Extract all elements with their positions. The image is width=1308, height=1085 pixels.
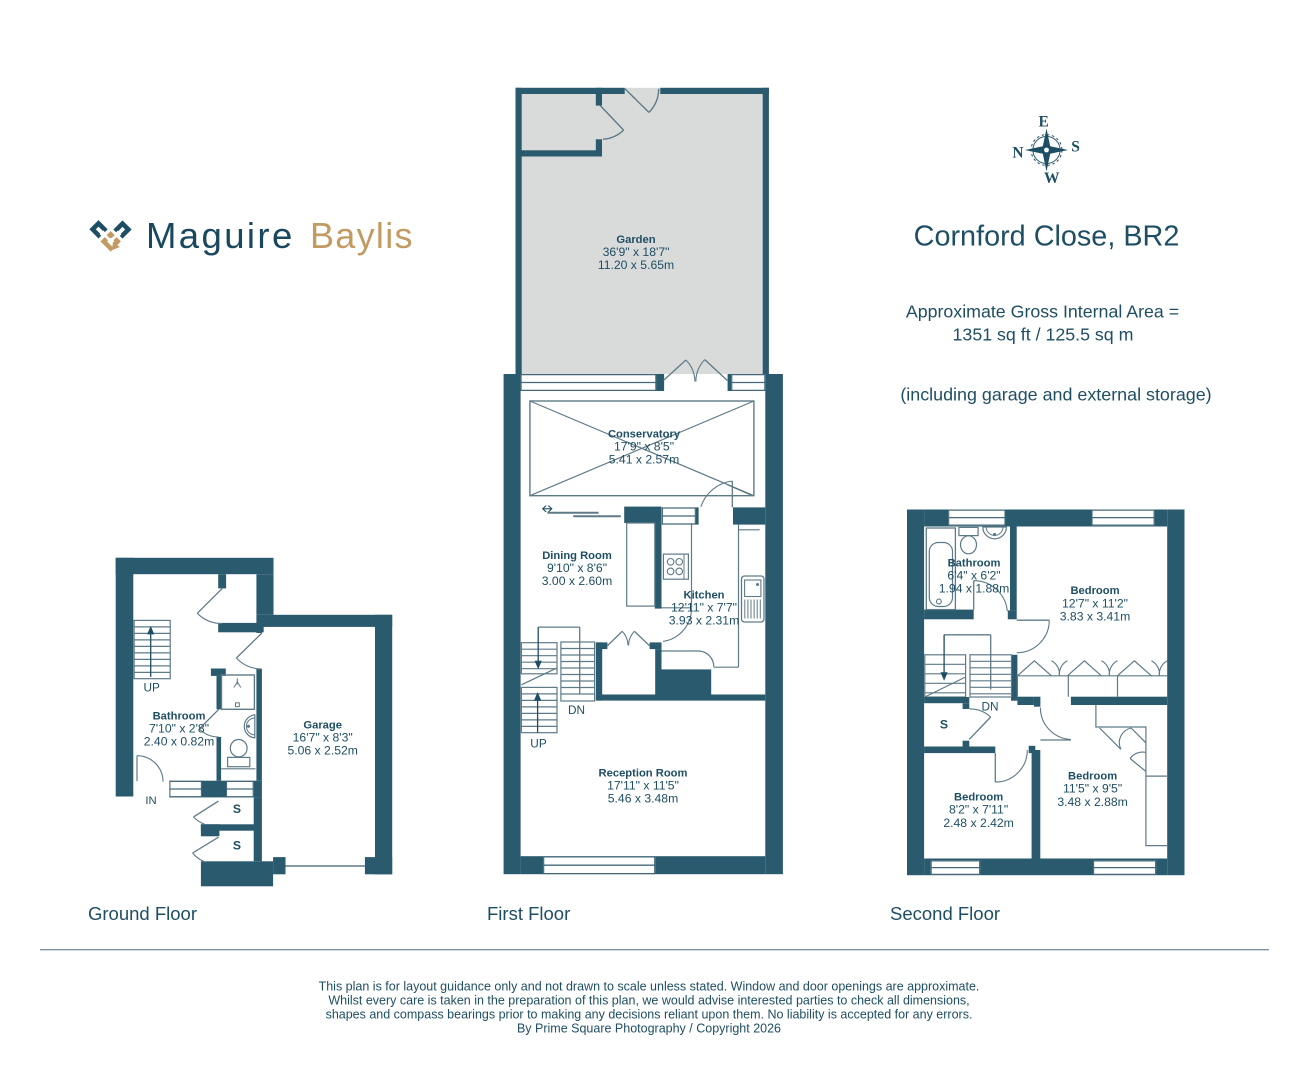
svg-text:S: S xyxy=(1071,139,1080,156)
svg-text:UP: UP xyxy=(144,681,161,695)
svg-text:3.00 x 2.60m: 3.00 x 2.60m xyxy=(542,574,612,588)
svg-text:5.06 x 2.52m: 5.06 x 2.52m xyxy=(287,744,357,758)
svg-text:3.93 x 2.31m: 3.93 x 2.31m xyxy=(669,614,739,628)
svg-text:5.41 x 2.57m: 5.41 x 2.57m xyxy=(609,453,679,467)
svg-text:(including garage and external: (including garage and external storage) xyxy=(900,384,1211,404)
svg-text:By Prime Square Photography /: By Prime Square Photography / Copyright … xyxy=(517,1021,781,1035)
svg-text:9'10" x 8'6": 9'10" x 8'6" xyxy=(547,561,607,575)
svg-text:Approximate Gross Internal Are: Approximate Gross Internal Area = xyxy=(906,302,1179,322)
svg-text:36'9" x 18'7": 36'9" x 18'7" xyxy=(603,245,670,259)
svg-text:12'7" x 11'2": 12'7" x 11'2" xyxy=(1062,596,1128,610)
svg-text:S: S xyxy=(233,839,241,853)
svg-text:Baylis: Baylis xyxy=(310,215,414,256)
svg-text:3.48 x 2.88m: 3.48 x 2.88m xyxy=(1057,795,1127,809)
svg-text:This plan is for layout guidan: This plan is for layout guidance only an… xyxy=(319,979,980,993)
svg-text:DN: DN xyxy=(568,703,585,717)
svg-text:2.40 x 0.82m: 2.40 x 0.82m xyxy=(144,735,214,749)
svg-text:3.83 x 3.41m: 3.83 x 3.41m xyxy=(1060,609,1130,623)
svg-text:DN: DN xyxy=(981,700,998,714)
svg-text:8'2" x 7'11": 8'2" x 7'11" xyxy=(949,803,1008,817)
svg-text:1.94 x 1.88m: 1.94 x 1.88m xyxy=(939,582,1009,596)
svg-text:Whilst every care is taken in: Whilst every care is taken in the prepar… xyxy=(328,993,969,1007)
svg-text:S: S xyxy=(940,718,948,732)
svg-text:S: S xyxy=(233,802,241,816)
svg-text:11.20 x 5.65m: 11.20 x 5.65m xyxy=(598,258,674,272)
svg-text:11'5" x 9'5": 11'5" x 9'5" xyxy=(1063,782,1122,796)
svg-text:Maguire: Maguire xyxy=(146,215,295,256)
svg-text:17'11" x 11'5": 17'11" x 11'5" xyxy=(607,778,679,792)
svg-text:Ground Floor: Ground Floor xyxy=(88,903,197,924)
svg-text:16'7" x 8'3": 16'7" x 8'3" xyxy=(293,731,353,745)
svg-text:shapes and compass bearings pr: shapes and compass bearings prior to mak… xyxy=(326,1007,973,1021)
svg-text:1351 sq ft / 125.5 sq m: 1351 sq ft / 125.5 sq m xyxy=(953,325,1134,345)
svg-text:2.48 x 2.42m: 2.48 x 2.42m xyxy=(943,816,1013,830)
svg-text:W: W xyxy=(1044,170,1060,187)
svg-text:Cornford Close, BR2: Cornford Close, BR2 xyxy=(914,221,1180,253)
svg-text:Second Floor: Second Floor xyxy=(890,903,1000,924)
svg-text:5.46 x 3.48m: 5.46 x 3.48m xyxy=(608,792,678,806)
svg-text:UP: UP xyxy=(530,737,547,751)
svg-text:17'9" x 8'5": 17'9" x 8'5" xyxy=(614,440,674,454)
svg-text:12'11" x 7'7": 12'11" x 7'7" xyxy=(671,600,737,614)
svg-text:6'4" x 6'2": 6'4" x 6'2" xyxy=(947,569,1000,583)
svg-text:E: E xyxy=(1039,114,1049,131)
svg-text:First Floor: First Floor xyxy=(487,903,570,924)
svg-text:N: N xyxy=(1012,145,1023,162)
svg-text:IN: IN xyxy=(145,795,156,807)
svg-text:7'10" x 2'8": 7'10" x 2'8" xyxy=(149,722,209,736)
